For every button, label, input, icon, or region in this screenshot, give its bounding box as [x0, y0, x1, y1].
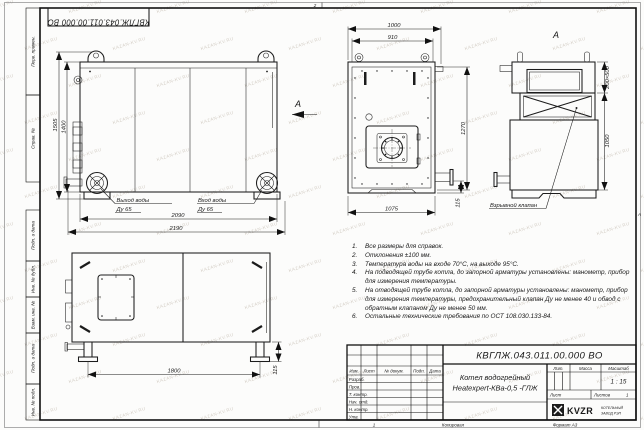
outlet-callout: Выход воды: [117, 198, 150, 204]
outlet-dn: Ду 65: [116, 207, 133, 213]
company-line-1: КОТЕЛЬНЫЙ: [601, 406, 624, 410]
title-block: Изм. Лист № докум. Подп. Дата Разраб. Пр…: [347, 345, 636, 420]
logo-text: KVZR: [567, 406, 593, 416]
note-text: На подводящей трубе котла, до запорной а…: [365, 269, 636, 287]
note-number: 3.: [352, 261, 365, 270]
tb-scale-value: 1 : 15: [611, 379, 627, 386]
stamp-cell-label: Справ. №: [31, 128, 36, 149]
note-number: 4.: [352, 269, 365, 278]
dim-legs-span: 1800: [168, 369, 182, 375]
dim-width-inner: 2090: [171, 213, 186, 219]
note-item: 5.На отводящей трубе котла, до запорной …: [352, 287, 636, 313]
tb-row-nachotd: Нач. отд.: [349, 399, 369, 404]
inlet-dn: Ду 65: [197, 207, 214, 213]
explosion-valve-callout: Взрывной клапан: [490, 202, 538, 209]
dim-width-outer: 2190: [169, 226, 184, 232]
tb-row-razrab: Разраб.: [349, 377, 365, 382]
note-item: 4.На подводящей трубе котла, до запорной…: [352, 269, 636, 287]
tb-designation: КВГЛЖ.043.011.00.000 ВО: [476, 351, 603, 362]
dim-right-height: 1270: [461, 121, 467, 135]
dim-pipe-height: 115: [456, 198, 462, 208]
format-label: Формат А3: [553, 422, 578, 427]
tb-row-utv: Утв.: [349, 414, 359, 419]
note-number: 5.: [352, 287, 365, 296]
tb-product-name-2: Heatexpert-КВа-0,5 -ГЛЖ: [453, 384, 539, 393]
stamp-cell-label: Инв. № дубл.: [31, 265, 36, 293]
dim-opening: 200×500: [605, 65, 611, 90]
drawing-canvas: 2 1 А Копировал Формат А3 КВГЛЖ.043.011.…: [0, 0, 644, 430]
flipped-designation-box: КВГЛЖ.043.011.00.000 ВО: [47, 8, 149, 26]
view-arrow-label: А: [294, 99, 301, 109]
dim-top-outer: 1000: [388, 23, 402, 29]
stamp-cell-label: Взам. инв. №: [31, 301, 36, 329]
note-item: 6.Остальные технические требования по ОС…: [352, 313, 636, 322]
zone-letter-right: А: [637, 212, 641, 217]
tb-col-list: Лист: [362, 369, 375, 374]
inlet-callout: Вход воды: [198, 198, 227, 204]
drawing-sheet: KAZAN-KV.RUKAZAN-KV.RUKAZAN-KV.RUKAZAN-K…: [0, 0, 644, 430]
tb-sheets-value: 1: [626, 393, 629, 398]
note-text: Отклонения ±100 мм.: [365, 252, 636, 261]
stamp-cell-label: Перв. примен.: [31, 36, 36, 67]
flipped-designation-text: КВГЛЖ.043.011.00.000 ВО: [47, 17, 149, 26]
note-text: На отводящей трубе котла, до запорной ар…: [365, 287, 636, 313]
note-number: 6.: [352, 313, 365, 322]
tb-col-data: Дата: [428, 369, 441, 374]
tb-sheet-label: Лист: [549, 393, 562, 398]
dim-bottom-width: 1075: [385, 207, 399, 213]
tb-product-name-1: Котел водогрейный: [460, 373, 530, 382]
copied-label: Копировал: [442, 422, 465, 427]
stamp-cell-label: Подп. и дата: [31, 221, 36, 250]
zone-number-top: 2: [313, 3, 317, 8]
note-number: 1.: [352, 243, 365, 252]
dim-height-outer: 1505: [53, 118, 59, 132]
tb-mass-label: Масса: [579, 366, 593, 371]
tb-col-dokum: № докум.: [384, 369, 403, 374]
dim-height-inner: 1400: [62, 120, 68, 134]
tb-col-izm: Изм.: [349, 369, 358, 374]
dim-top-inner: 910: [388, 35, 398, 41]
stamp-cell-label: Инв. № подл.: [31, 388, 36, 417]
stamp-cell-label: Подп. и дата: [31, 344, 36, 373]
view-a-label: А: [552, 30, 559, 40]
tb-sheets-label: Листов: [593, 393, 611, 398]
note-item: 2.Отклонения ±100 мм.: [352, 252, 636, 261]
company-line-2: ЗАВОД РЭП: [601, 412, 622, 416]
tb-row-tkontr: Т. контр.: [349, 392, 368, 397]
company-logo: KVZR КОТЕЛЬНЫЙ ЗАВОД РЭП: [552, 404, 624, 416]
tb-scale-label: Масштаб: [608, 366, 629, 371]
note-text: Остальные технические требования по ОСТ …: [365, 313, 636, 322]
view-a: А 200×500 1050: [489, 30, 611, 209]
note-item: 1.Все размеры для справок.: [352, 243, 636, 252]
view-bottom: 1800 115: [65, 253, 282, 378]
view-front: 1000 910 1270 115 1075: [348, 23, 470, 216]
technical-notes: 1.Все размеры для справок. 2.Отклонения …: [352, 243, 636, 322]
side-stamp-column: Перв. примен. Справ. № Подп. и дата Инв.…: [26, 8, 40, 420]
tb-row-prov: Пров.: [349, 384, 361, 389]
note-number: 2.: [352, 252, 365, 261]
dim-a-height: 1050: [605, 134, 611, 148]
note-text: Все размеры для справок.: [365, 243, 636, 252]
tb-col-podp: Подп.: [413, 369, 425, 374]
tb-lit-label: Лит.: [552, 366, 563, 371]
dim-leg-height: 115: [273, 365, 279, 375]
tb-row-nkontr: Н. контр.: [349, 407, 369, 412]
zone-number-bottom: 1: [373, 422, 376, 427]
view-side: 1505 1400 2090 2190 Выход воды Ду 65 Вхо…: [53, 51, 317, 235]
